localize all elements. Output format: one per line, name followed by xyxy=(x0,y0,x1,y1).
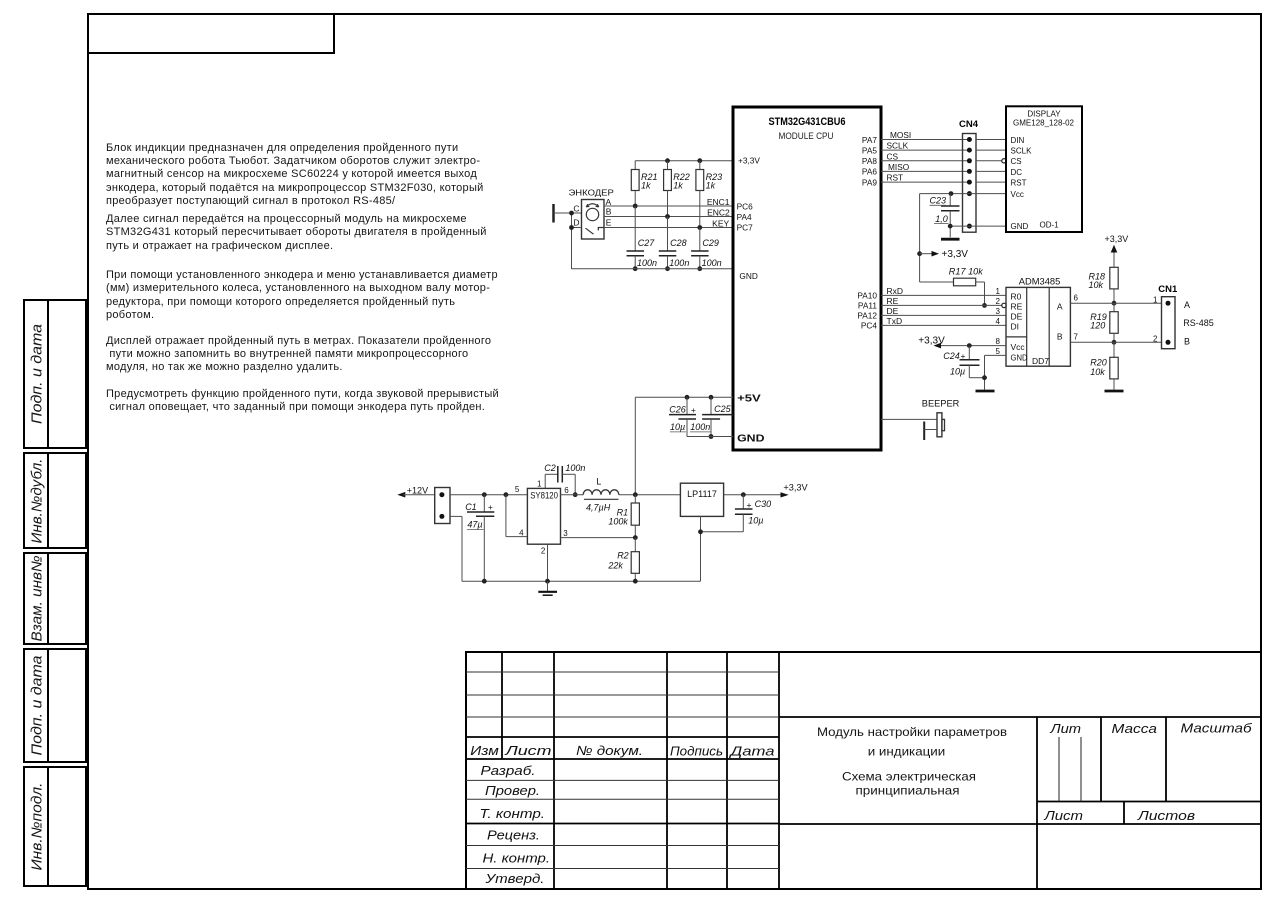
svg-text:C24: C24 xyxy=(943,351,960,361)
svg-text:3: 3 xyxy=(996,307,1001,316)
svg-text:ENC2: ENC2 xyxy=(707,208,730,218)
svg-text:PA4: PA4 xyxy=(737,212,752,222)
svg-text:+3,3V: +3,3V xyxy=(783,482,807,492)
svg-text:R2: R2 xyxy=(617,550,629,560)
svg-text:LP1117: LP1117 xyxy=(687,489,717,499)
svg-text:10µ: 10µ xyxy=(950,367,965,377)
svg-text:6: 6 xyxy=(1074,293,1079,302)
svg-text:DD7: DD7 xyxy=(1032,356,1049,366)
svg-text:CS: CS xyxy=(887,151,899,161)
svg-text:4,7µH: 4,7µH xyxy=(586,502,611,512)
svg-text:Т. контр.: Т. контр. xyxy=(480,806,546,821)
svg-text:1: 1 xyxy=(537,479,542,488)
svg-text:Лист: Лист xyxy=(504,743,551,758)
svg-text:B: B xyxy=(1184,336,1190,346)
svg-text:PA7: PA7 xyxy=(862,135,877,145)
svg-text:7: 7 xyxy=(1074,333,1079,342)
svg-text:ADM3485: ADM3485 xyxy=(1019,276,1061,287)
svg-text:100n: 100n xyxy=(637,258,657,268)
svg-text:SCLK: SCLK xyxy=(1011,147,1033,156)
svg-text:10k: 10k xyxy=(1089,280,1104,290)
svg-text:2: 2 xyxy=(1153,335,1158,344)
svg-text:Лит: Лит xyxy=(1049,721,1081,736)
svg-text:№ докум.: № докум. xyxy=(576,743,643,758)
svg-text:Н. контр.: Н. контр. xyxy=(483,851,551,866)
svg-text:RE: RE xyxy=(887,296,899,306)
svg-text:Взам. инв№: Взам. инв№ xyxy=(30,555,46,641)
svg-text:C27: C27 xyxy=(638,238,656,248)
svg-text:GND: GND xyxy=(1011,222,1029,231)
svg-text:+: + xyxy=(961,351,966,361)
svg-text:5: 5 xyxy=(515,485,520,494)
svg-text:4: 4 xyxy=(996,317,1001,326)
svg-text:Модуль настройки параметров: Модуль настройки параметров xyxy=(817,725,1007,739)
svg-text:Реценз.: Реценз. xyxy=(487,828,540,843)
svg-text:1: 1 xyxy=(996,287,1001,296)
svg-text:3: 3 xyxy=(563,529,568,538)
svg-text:RE: RE xyxy=(1011,301,1023,311)
svg-text:Vcc: Vcc xyxy=(1011,342,1026,352)
svg-text:4: 4 xyxy=(519,529,524,538)
svg-text:Изм: Изм xyxy=(470,743,499,758)
svg-text:+3,3V: +3,3V xyxy=(918,336,945,347)
svg-text:DE: DE xyxy=(887,306,899,316)
svg-text:1k: 1k xyxy=(641,180,651,190)
svg-text:E: E xyxy=(606,217,612,227)
svg-text:1k: 1k xyxy=(706,180,716,190)
svg-text:PC6: PC6 xyxy=(737,202,754,212)
svg-text:DC: DC xyxy=(1011,168,1023,177)
svg-text:C: C xyxy=(573,203,579,213)
svg-text:+5V: +5V xyxy=(737,393,761,405)
svg-text:100n: 100n xyxy=(565,463,585,473)
svg-text:GND: GND xyxy=(1011,353,1028,363)
svg-text:100n: 100n xyxy=(690,422,710,432)
svg-text:DE: DE xyxy=(1011,311,1023,321)
svg-text:100n: 100n xyxy=(702,258,722,268)
svg-text:120: 120 xyxy=(1090,321,1105,331)
svg-text:C25: C25 xyxy=(714,404,732,414)
svg-text:MODULE CPU: MODULE CPU xyxy=(779,131,834,141)
svg-text:Подп. и дата: Подп. и дата xyxy=(30,324,46,424)
svg-text:Vcc: Vcc xyxy=(1011,190,1024,199)
svg-text:C30: C30 xyxy=(755,499,772,509)
svg-text:GND: GND xyxy=(737,432,765,444)
svg-text:PA10: PA10 xyxy=(857,291,877,301)
svg-text:PC7: PC7 xyxy=(737,223,754,233)
svg-text:C28: C28 xyxy=(670,238,687,248)
svg-text:2: 2 xyxy=(541,547,546,556)
svg-text:Масштаб: Масштаб xyxy=(1181,721,1253,736)
svg-text:D: D xyxy=(573,218,579,228)
svg-text:Провер.: Провер. xyxy=(485,783,540,798)
svg-text:C29: C29 xyxy=(702,238,719,248)
svg-text:R17 10k: R17 10k xyxy=(949,266,983,276)
svg-text:Дата: Дата xyxy=(728,744,775,759)
svg-text:CN1: CN1 xyxy=(1158,284,1178,295)
svg-text:GME128_128-02: GME128_128-02 xyxy=(1013,118,1074,127)
svg-text:Подп. и дата: Подп. и дата xyxy=(30,656,46,756)
svg-text:Инв.№дубл.: Инв.№дубл. xyxy=(30,459,46,544)
svg-text:RxD: RxD xyxy=(887,286,904,296)
svg-text:A: A xyxy=(1057,301,1063,311)
svg-text:+: + xyxy=(747,500,752,510)
svg-text:и индикации: и индикации xyxy=(868,745,946,759)
svg-text:DISPLAY: DISPLAY xyxy=(1027,110,1061,119)
svg-text:+12V: +12V xyxy=(407,486,428,496)
svg-text:Масса: Масса xyxy=(1112,721,1158,736)
svg-text:6: 6 xyxy=(564,486,569,495)
svg-text:DI: DI xyxy=(1011,322,1020,332)
svg-text:RST: RST xyxy=(887,173,904,183)
svg-text:1,0: 1,0 xyxy=(935,214,948,224)
svg-text:принципиальная: принципиальная xyxy=(856,784,960,798)
svg-text:+3,3V: +3,3V xyxy=(942,249,969,260)
svg-text:Разраб.: Разраб. xyxy=(481,763,536,778)
svg-text:+3,3V: +3,3V xyxy=(738,156,760,166)
svg-text:ENC1: ENC1 xyxy=(707,197,730,207)
svg-text:5: 5 xyxy=(996,347,1001,356)
svg-text:OD-1: OD-1 xyxy=(1040,221,1060,230)
svg-text:2: 2 xyxy=(996,297,1001,306)
svg-text:PA8: PA8 xyxy=(862,156,877,166)
svg-text:STM32G431CBU6: STM32G431CBU6 xyxy=(769,116,846,128)
svg-text:+: + xyxy=(488,502,493,512)
svg-text:C2: C2 xyxy=(544,463,556,473)
svg-text:GND: GND xyxy=(739,271,757,281)
svg-text:BEEPER: BEEPER xyxy=(922,398,960,409)
svg-text:KEY: KEY xyxy=(712,219,729,229)
svg-text:PA11: PA11 xyxy=(858,301,877,311)
svg-text:10µ: 10µ xyxy=(748,515,763,525)
svg-text:Подпись: Подпись xyxy=(670,744,723,759)
svg-text:100k: 100k xyxy=(608,516,628,526)
svg-text:L: L xyxy=(596,476,601,486)
svg-text:Листов: Листов xyxy=(1137,808,1195,823)
svg-text:B: B xyxy=(1057,332,1063,342)
svg-text:47µ: 47µ xyxy=(467,520,482,530)
svg-text:+: + xyxy=(691,405,696,415)
svg-text:+3,3V: +3,3V xyxy=(1105,234,1129,244)
svg-text:1k: 1k xyxy=(673,180,683,190)
svg-text:MOSI: MOSI xyxy=(890,130,911,140)
svg-text:SCLK: SCLK xyxy=(887,141,909,151)
svg-text:B: B xyxy=(606,206,612,216)
svg-text:C23: C23 xyxy=(930,195,947,205)
svg-text:PA9: PA9 xyxy=(862,177,877,187)
svg-text:MISO: MISO xyxy=(888,162,910,172)
svg-text:RS-485: RS-485 xyxy=(1183,318,1214,328)
svg-text:10µ: 10µ xyxy=(670,422,685,432)
svg-text:PC4: PC4 xyxy=(861,321,878,331)
svg-text:PA5: PA5 xyxy=(862,145,877,155)
svg-text:C1: C1 xyxy=(465,502,477,512)
svg-text:C26: C26 xyxy=(669,404,686,414)
svg-text:CN4: CN4 xyxy=(959,119,979,130)
svg-text:100n: 100n xyxy=(669,258,689,268)
svg-text:Схема электрическая: Схема электрическая xyxy=(842,769,976,783)
svg-text:PA6: PA6 xyxy=(862,167,877,177)
svg-text:SY8120: SY8120 xyxy=(530,490,558,501)
svg-text:R0: R0 xyxy=(1011,291,1022,301)
svg-text:10k: 10k xyxy=(1090,367,1105,377)
svg-text:Лист: Лист xyxy=(1043,808,1083,823)
svg-text:Утверд.: Утверд. xyxy=(484,871,544,886)
svg-text:DIN: DIN xyxy=(1011,136,1025,145)
svg-text:PA12: PA12 xyxy=(857,311,877,321)
svg-text:TxD: TxD xyxy=(887,316,903,326)
svg-text:CS: CS xyxy=(1011,157,1022,166)
svg-text:8: 8 xyxy=(996,337,1001,346)
svg-text:RST: RST xyxy=(1011,179,1027,188)
svg-text:1: 1 xyxy=(1153,295,1158,304)
svg-text:22k: 22k xyxy=(607,560,623,570)
svg-text:A: A xyxy=(1184,300,1190,310)
svg-text:Инв.№подл.: Инв.№подл. xyxy=(30,783,46,871)
